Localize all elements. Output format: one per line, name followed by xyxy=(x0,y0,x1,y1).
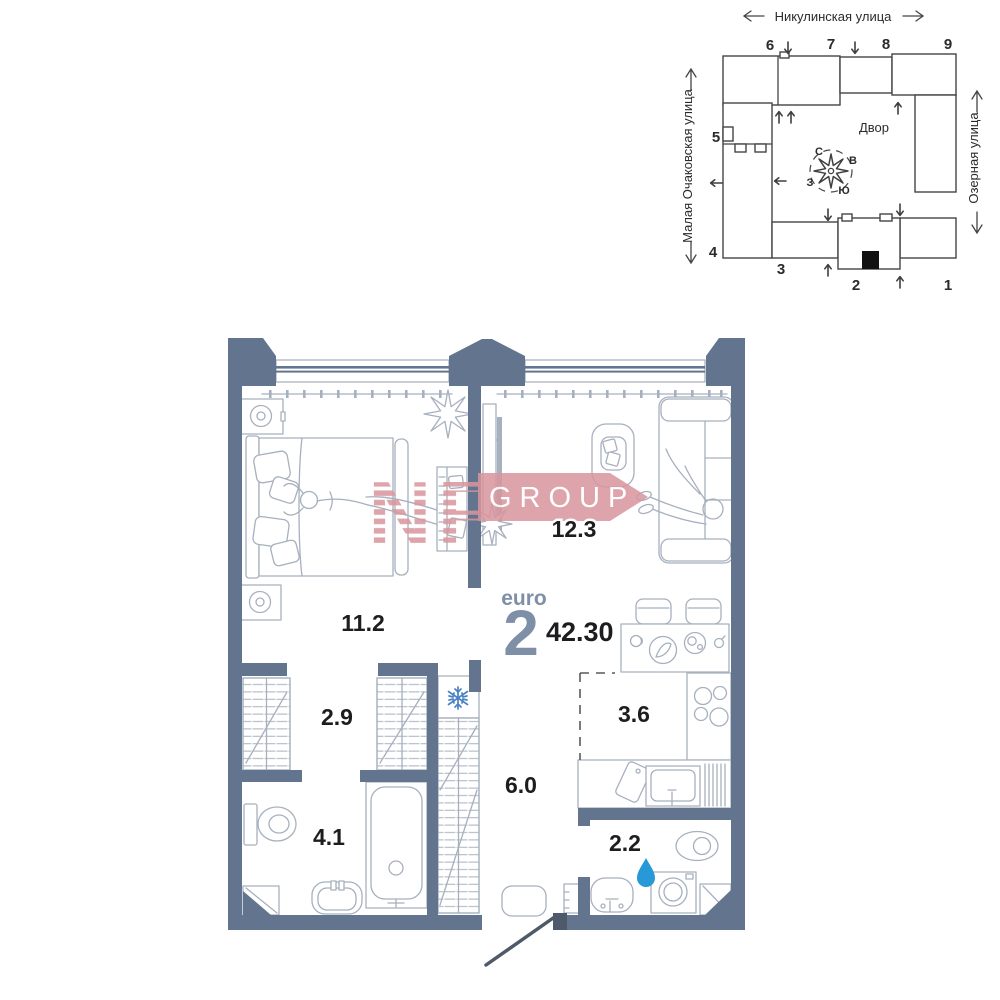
building-number-4: 4 xyxy=(709,244,718,261)
floorplan-page: Никулинская улица Малая Очаковская улица… xyxy=(0,0,1000,1000)
toilet-bathroom xyxy=(244,804,296,845)
building-number-6: 6 xyxy=(766,37,774,54)
courtyard-label: Двор xyxy=(859,120,889,135)
building-number-9: 9 xyxy=(944,36,952,53)
street-top-arrow-right-icon xyxy=(903,11,923,21)
compass-rose: С В З Ю xyxy=(807,146,857,197)
room-area-hallway: 2.9 xyxy=(321,704,353,730)
building-number-8: 8 xyxy=(882,36,890,53)
nightstand-bottom xyxy=(239,585,281,620)
room-area-bedroom: 11.2 xyxy=(341,610,385,636)
curtain-rail-bedroom xyxy=(262,390,452,398)
unit-rooms-count: 2 xyxy=(503,597,539,669)
wardrobe-corridor xyxy=(438,718,479,913)
sink-bathroom xyxy=(312,881,362,914)
room-area-wc: 2.2 xyxy=(609,830,641,856)
street-top-arrow-left-icon xyxy=(744,11,764,21)
compass-south: Ю xyxy=(838,185,849,197)
water-drop-icon xyxy=(637,858,655,887)
washing-machine xyxy=(651,872,696,913)
apartment-plan xyxy=(228,338,745,965)
unit-total-area: 42.30 xyxy=(546,617,614,647)
toilet-wc xyxy=(676,832,718,861)
entry-door-swing xyxy=(486,916,556,965)
dining-table xyxy=(621,624,729,672)
kitchen-counter-sink xyxy=(578,760,731,808)
nf-group-watermark: NF GROUP xyxy=(368,463,648,562)
watermark-word: GROUP xyxy=(489,482,635,514)
sink-wc xyxy=(591,878,633,912)
kitchen-zone-dashed-line xyxy=(580,673,615,760)
watermark-letters: NF xyxy=(368,463,497,562)
vent-shaft-bathroom xyxy=(243,886,279,915)
plant-bedroom xyxy=(424,390,472,438)
room-area-bathroom: 4.1 xyxy=(313,824,345,850)
pouf xyxy=(502,886,546,916)
building-number-5: 5 xyxy=(712,129,720,146)
compass-west: З xyxy=(807,177,814,189)
compass-east: В xyxy=(849,155,857,167)
entry-radiator xyxy=(564,884,579,913)
room-area-living: 12.3 xyxy=(552,516,597,542)
room-area-corridor: 6.0 xyxy=(505,772,537,798)
street-right-label: Озерная улица xyxy=(966,112,981,204)
building-number-2: 2 xyxy=(852,277,860,294)
selected-unit-marker xyxy=(862,251,879,269)
nightstand-top xyxy=(239,399,285,434)
street-left-label: Малая Очаковская улица xyxy=(680,88,695,242)
wardrobe-hall-right xyxy=(377,678,427,770)
dining-chairs xyxy=(636,599,721,624)
building-number-1: 1 xyxy=(944,277,952,294)
bathtub xyxy=(366,782,427,908)
vent-shaft-wc xyxy=(700,884,731,915)
compass-north: С xyxy=(815,146,823,158)
sofa xyxy=(659,397,734,563)
street-top-label: Никулинская улица xyxy=(775,9,893,24)
room-area-kitchen: 3.6 xyxy=(618,701,650,727)
kitchen-counter-stove xyxy=(687,673,731,760)
floorplan-svg: Никулинская улица Малая Очаковская улица… xyxy=(0,0,1000,1000)
site-plan: Никулинская улица Малая Очаковская улица… xyxy=(680,9,982,294)
wardrobe-hall-left xyxy=(243,678,290,770)
building-number-7: 7 xyxy=(827,36,835,53)
building-number-3: 3 xyxy=(777,261,785,278)
